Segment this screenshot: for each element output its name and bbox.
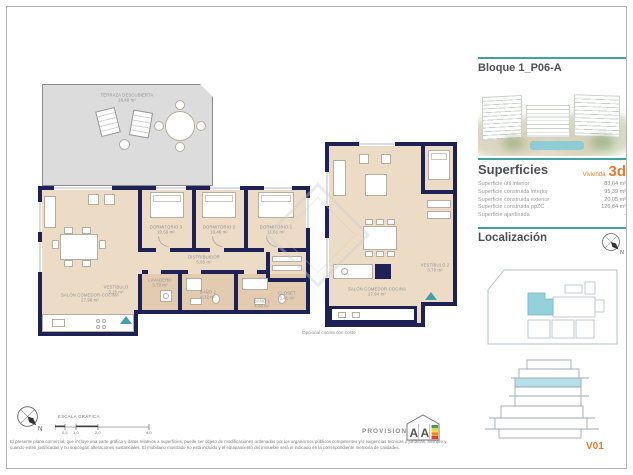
side-table xyxy=(119,139,130,150)
dining-table xyxy=(60,234,98,260)
building xyxy=(526,105,570,138)
table-row: Superficie útil interior83,64 m² xyxy=(478,182,626,188)
hob-burner xyxy=(96,319,100,323)
wall xyxy=(266,278,310,282)
table-row: Superficie construida ppZC126,84 m² xyxy=(478,205,626,211)
wall xyxy=(244,190,248,248)
compass-icon: N xyxy=(16,404,46,436)
window xyxy=(54,186,112,190)
room-label-bano-1: BAÑO 14,86 m² xyxy=(254,299,270,310)
building xyxy=(482,95,522,141)
scale-tick-label: 1,0 xyxy=(73,430,79,435)
window xyxy=(156,186,186,190)
room-label-dormitorio-2: DORMITORIO 210,46 m² xyxy=(203,225,235,236)
hob-burner xyxy=(102,319,106,323)
compass-icon: N xyxy=(601,232,627,258)
chair xyxy=(64,260,73,267)
sink xyxy=(352,312,360,318)
terrace: TERRAZA DESCUBIERTA18,40 m² xyxy=(42,84,213,186)
wall xyxy=(38,332,138,336)
window xyxy=(38,202,42,232)
room-label-terraza: TERRAZA DESCUBIERTA18,40 m² xyxy=(101,93,154,104)
chair xyxy=(82,260,91,267)
hob xyxy=(338,312,346,318)
plan-sheet: TERRAZA DESCUBIERTA18,40 m² xyxy=(0,0,633,475)
bed xyxy=(202,192,236,218)
wall xyxy=(138,274,142,310)
room-label-salon: SALÓN COMEDOR-COCINA27,96 m² xyxy=(61,293,119,304)
door-opening xyxy=(188,270,201,274)
energy-bar-orange xyxy=(432,432,439,435)
scale-bar-title: ESCALA GRÁFICA xyxy=(58,414,100,419)
coffee-table xyxy=(365,174,387,196)
room-label-bano-2: BAÑO 24,32 m² xyxy=(200,290,216,301)
armchair xyxy=(381,154,391,164)
superficies-table: Superficie útil interior83,64 m² Superfi… xyxy=(478,182,626,221)
sofa xyxy=(44,196,56,228)
entrance-arrow-icon xyxy=(425,292,437,300)
window xyxy=(359,142,395,146)
window xyxy=(38,242,42,272)
main-floor-plan: DORMITORIO 310,56 m² DORMITORIO 210,46 m… xyxy=(38,186,310,336)
terrace-corner-cut xyxy=(200,84,213,97)
chair xyxy=(82,227,91,234)
energy-bar-green xyxy=(432,425,439,428)
terrace-chair xyxy=(154,121,164,131)
divider xyxy=(478,227,626,229)
kitchen-sink xyxy=(52,319,65,327)
scale-tick-label: 4,0 xyxy=(146,430,152,435)
svg-text:N: N xyxy=(38,425,43,432)
hob-burner xyxy=(96,325,100,329)
wall xyxy=(266,252,270,278)
terrace-chair xyxy=(175,142,185,152)
version-label: V01 xyxy=(586,441,604,452)
terrace-table xyxy=(165,111,195,141)
disclaimer: El presente plano comercial, que incluye… xyxy=(10,439,462,450)
tree xyxy=(590,134,614,150)
tree xyxy=(502,136,524,150)
door-opening xyxy=(244,270,257,274)
wall xyxy=(421,146,425,194)
lounge-chair xyxy=(95,107,121,137)
chair xyxy=(64,227,73,234)
vivienda-tag: Vivienda 3d xyxy=(583,163,626,180)
superficies-heading: Superficies xyxy=(478,162,548,177)
lounge-chair xyxy=(129,109,153,138)
building-section xyxy=(483,356,623,442)
table-row: Superficie construida interior95,39 m² xyxy=(478,190,626,196)
chair xyxy=(387,251,395,257)
terrace-chair xyxy=(196,121,206,131)
door-arc xyxy=(158,236,169,247)
block-title: Bloque 1_P06-A xyxy=(478,62,562,74)
building xyxy=(574,94,620,138)
wall xyxy=(192,190,196,248)
armchair xyxy=(88,194,99,205)
energy-bar-yellow xyxy=(432,429,439,432)
exterior-notch xyxy=(425,306,457,327)
wall xyxy=(138,190,142,252)
kitchen-island xyxy=(375,264,391,279)
pool xyxy=(530,141,584,150)
svg-text:A: A xyxy=(421,426,430,440)
vivienda-value: 3d xyxy=(608,163,626,180)
localizacion-heading: Localización xyxy=(478,232,547,244)
wardrobe xyxy=(427,200,451,208)
table-row: Superficie construida exterior20,05 m² xyxy=(478,198,626,204)
scale-tick-label: 0,5 xyxy=(62,430,68,435)
scale-bar xyxy=(55,421,155,433)
building-rendering xyxy=(478,84,626,156)
optional-kitchen-unit xyxy=(329,306,417,323)
table-row: Superficie ajardinada- xyxy=(478,213,626,219)
site-plan xyxy=(482,260,624,352)
sofa xyxy=(333,160,346,196)
room-label-dormitorio-3: DORMITORIO 310,56 m² xyxy=(150,225,182,236)
chair xyxy=(376,251,384,257)
wall xyxy=(234,274,238,310)
armchair xyxy=(104,194,115,205)
room-label-distribuidor: DISTRIBUIDOR5,05 m² xyxy=(188,255,220,266)
energy-bar-red xyxy=(432,436,439,439)
vivienda-label: Vivienda xyxy=(583,172,606,178)
washer-drum xyxy=(163,293,169,299)
bed xyxy=(428,150,450,180)
highlighted-floor xyxy=(515,378,581,387)
bathtub xyxy=(242,278,268,290)
window xyxy=(210,186,240,190)
chair xyxy=(99,240,106,249)
exterior-notch xyxy=(138,314,310,336)
disclaimer-line-2: cuando estén justificadas y no supongan … xyxy=(10,445,462,451)
entrance-arrow-icon xyxy=(120,316,132,324)
chair xyxy=(387,219,395,225)
door-opening xyxy=(210,248,224,252)
alt-plan-caption: Opcional cocina con coste xyxy=(302,330,356,335)
dining-table xyxy=(363,226,397,250)
room-label-vestibulo-2: VESTÍBULO 23,79 m² xyxy=(421,263,450,274)
energy-rating-logo: A A xyxy=(404,413,442,441)
chair xyxy=(365,219,373,225)
wall xyxy=(325,323,425,327)
wall xyxy=(453,142,457,306)
wardrobe xyxy=(427,211,451,219)
door-arc xyxy=(212,236,223,247)
highlighted-unit xyxy=(528,293,553,315)
chair xyxy=(365,251,373,257)
chair xyxy=(376,219,384,225)
divider xyxy=(478,57,626,59)
kitchen-sink xyxy=(341,268,348,275)
room-label-lavadero: LAVADERO3,70 m² xyxy=(148,278,171,289)
svg-text:A: A xyxy=(410,426,419,440)
terrace-chair xyxy=(175,100,185,110)
svg-text:N: N xyxy=(620,250,624,256)
room-label-salon-alt: SALÓN COMEDOR-COCINA27,94 m² xyxy=(348,287,406,298)
bed xyxy=(150,192,184,218)
disclaimer-line-1: El presente plano comercial, que incluye… xyxy=(10,439,462,445)
door-opening xyxy=(156,248,170,252)
wall xyxy=(178,274,182,310)
room-label-closet: CLOSET3,41 m² xyxy=(278,291,296,302)
chair xyxy=(52,240,59,249)
armchair xyxy=(359,154,369,164)
hob-burner xyxy=(102,325,106,329)
window xyxy=(264,186,292,190)
wall xyxy=(421,190,457,194)
divider xyxy=(478,158,626,160)
scale-tick-label: 2,0 xyxy=(95,430,101,435)
door-opening xyxy=(148,270,161,274)
